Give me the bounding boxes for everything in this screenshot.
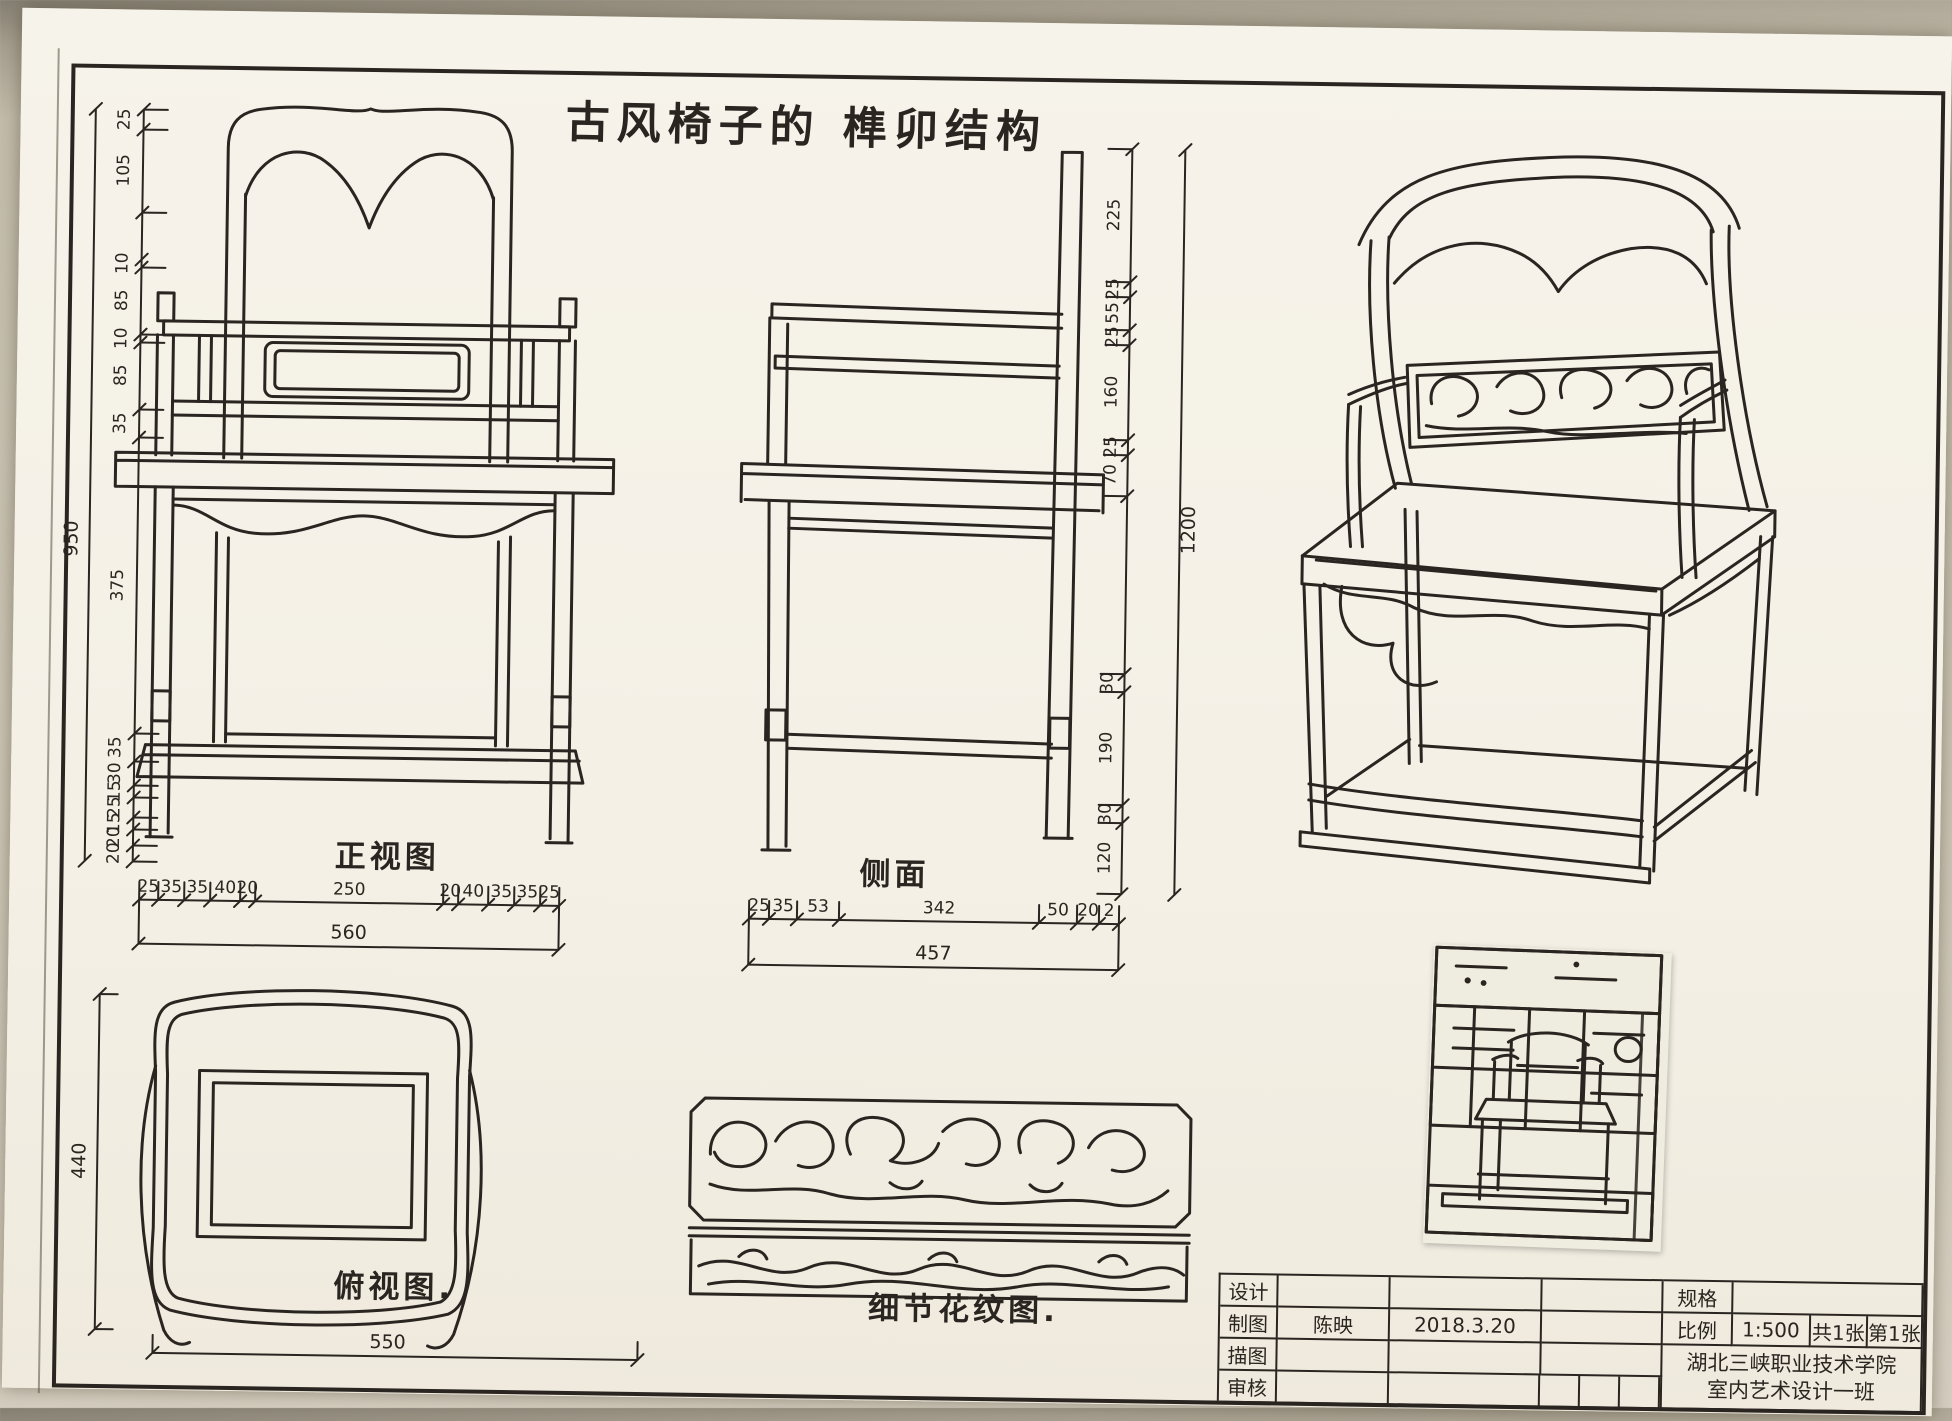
dim-value: 35 bbox=[490, 882, 512, 902]
front-bottom-dimension-chain: 25 35 35 40 20 250 20 40 35 35 25 560 bbox=[88, 869, 619, 977]
dim-value: 85 bbox=[111, 364, 131, 386]
front-view-seat bbox=[115, 452, 613, 493]
dim-value: 120 bbox=[1095, 842, 1115, 875]
perspective-arms bbox=[1345, 374, 1727, 578]
carving-scrolls bbox=[698, 1115, 1185, 1293]
tb-row0-label: 设计 bbox=[1220, 1275, 1278, 1308]
dim-value: 53 bbox=[807, 897, 829, 917]
side-view-back-post bbox=[1046, 152, 1082, 838]
tb-row3-label: 审核 bbox=[1219, 1371, 1277, 1404]
side-right-dimension-chain: 225 25 55 25 160 25 70 30 190 30 120 120… bbox=[1079, 129, 1221, 931]
top-view-inner-panel bbox=[197, 1071, 427, 1240]
tb-row3-date bbox=[1388, 1373, 1540, 1407]
detail-view-label: 细节花纹图. bbox=[868, 1282, 1059, 1330]
chair-photo bbox=[1423, 944, 1672, 1252]
tb-row1-date: 2018.3.20 bbox=[1390, 1309, 1542, 1343]
scale-value: 1:500 bbox=[1733, 1314, 1811, 1347]
front-left-dimension-chain: 25 105 10 85 10 85 35 375 35 30 15 25 15… bbox=[54, 78, 176, 880]
side-view-label: 侧面 bbox=[859, 848, 930, 894]
dim-value: 25 bbox=[137, 877, 159, 897]
front-view-back bbox=[224, 106, 513, 462]
top-bottom-dimension: 550 bbox=[137, 1325, 648, 1383]
dim-value: 225 bbox=[1104, 199, 1124, 232]
top-view-label: 俯视图. bbox=[333, 1261, 454, 1308]
perspective-carved-panel bbox=[1406, 347, 1725, 452]
title-block: 设计 制图 陈映 2018.3.20 描图 审核 bbox=[1217, 1273, 1924, 1411]
dim-total: 550 bbox=[369, 1331, 406, 1354]
top-left-dimension: 440 bbox=[62, 969, 123, 1370]
tb-row0-date bbox=[1390, 1277, 1542, 1311]
dim-value: 35 bbox=[160, 877, 182, 897]
dim-total: 950 bbox=[60, 520, 83, 557]
tb-row0-extra bbox=[1542, 1279, 1663, 1313]
tb-row3-cell5 bbox=[1580, 1376, 1620, 1409]
drawing-sheet: 古风椅子的 榫卯结构 bbox=[2, 8, 1952, 1416]
front-view-arm-rails bbox=[156, 293, 576, 461]
class-name: 室内艺术设计一班 bbox=[1707, 1377, 1875, 1407]
tb-row0-name bbox=[1278, 1276, 1390, 1310]
dim-value: 50 bbox=[1047, 900, 1069, 920]
dim-value: 105 bbox=[114, 154, 134, 187]
dim-total: 1200 bbox=[1177, 506, 1200, 555]
dim-value: 25 bbox=[1103, 278, 1123, 300]
perspective-view-drawing bbox=[1249, 131, 1831, 919]
detail-pattern-drawing bbox=[678, 1088, 1201, 1311]
dim-value: 20 bbox=[1077, 901, 1099, 921]
dim-value: 40 bbox=[214, 878, 236, 898]
sheet-index: 第1张 bbox=[1868, 1316, 1923, 1349]
tb-row2-label: 描图 bbox=[1219, 1339, 1277, 1372]
tb-row1-label: 制图 bbox=[1220, 1307, 1278, 1340]
tb-row2-date bbox=[1389, 1341, 1541, 1375]
dim-total: 560 bbox=[330, 921, 367, 944]
school-name: 湖北三峡职业技术学院 bbox=[1686, 1349, 1896, 1379]
dim-value: 25 bbox=[1102, 326, 1122, 348]
tb-row1-extra bbox=[1542, 1311, 1663, 1345]
dim-value: 35 bbox=[110, 412, 130, 434]
tick-marks bbox=[127, 103, 168, 867]
title-block-left: 设计 制图 陈映 2018.3.20 描图 审核 bbox=[1217, 1273, 1664, 1408]
spec-value bbox=[1733, 1282, 1923, 1317]
tb-row2-name bbox=[1277, 1340, 1389, 1374]
dim-value: 35 bbox=[772, 896, 794, 916]
title-block-right: 规格 比例 1:500 共1张 第1张 湖北三峡职业技术学院 室内艺术设计一班 bbox=[1662, 1279, 1924, 1411]
dim-value: 35 bbox=[105, 736, 125, 758]
side-view-arm bbox=[768, 304, 1062, 468]
tb-row1-name: 陈映 bbox=[1278, 1308, 1390, 1342]
front-view-base bbox=[136, 487, 587, 844]
dim-value: 25 bbox=[748, 896, 770, 916]
dim-value: 40 bbox=[462, 881, 484, 901]
dim-value: 20 bbox=[104, 842, 124, 864]
front-view-label: 正视图 bbox=[335, 830, 441, 877]
dim-value: 35 bbox=[516, 882, 538, 902]
dim-value: 85 bbox=[112, 289, 132, 311]
side-view-drawing bbox=[719, 133, 1120, 899]
dim-value: 20 bbox=[439, 881, 461, 901]
dim-value: 25 bbox=[1101, 436, 1121, 458]
dim-value: 25 bbox=[115, 108, 135, 130]
front-view-drawing bbox=[100, 84, 632, 872]
dim-value: 70 bbox=[1100, 464, 1120, 486]
dim-value: 10 bbox=[111, 327, 131, 349]
dim-value: 20 bbox=[236, 878, 258, 898]
tb-row3-cell6 bbox=[1620, 1377, 1660, 1410]
dim-total: 457 bbox=[915, 942, 952, 965]
dim-value: 10 bbox=[112, 252, 132, 274]
scale-label: 比例 bbox=[1663, 1313, 1733, 1346]
dim-value: 190 bbox=[1096, 732, 1116, 765]
sheet-count: 共1张 bbox=[1811, 1315, 1868, 1348]
dim-value: 35 bbox=[186, 877, 208, 897]
dim-value: 250 bbox=[333, 879, 366, 899]
side-view-seat bbox=[741, 463, 1104, 512]
side-bottom-dimension-chain: 25 35 53 342 50 20 2 457 bbox=[723, 888, 1145, 999]
dim-value: 30 bbox=[1097, 672, 1117, 694]
dim-value: 25 bbox=[538, 883, 560, 903]
tb-row2-extra bbox=[1541, 1343, 1662, 1377]
perspective-back bbox=[1355, 154, 1772, 511]
tick-marks bbox=[1097, 143, 1138, 900]
school-cell: 湖北三峡职业技术学院 室内艺术设计一班 bbox=[1662, 1345, 1923, 1413]
dim-value: 342 bbox=[923, 898, 956, 918]
side-view-base bbox=[762, 502, 1077, 855]
dim-value: 160 bbox=[1102, 376, 1122, 409]
chair-photo-image bbox=[1426, 947, 1662, 1240]
dim-total: 440 bbox=[68, 1142, 91, 1179]
tb-row3-cell4 bbox=[1540, 1375, 1580, 1408]
tb-row3-name bbox=[1277, 1372, 1389, 1406]
dim-value: 2 bbox=[1104, 901, 1115, 921]
dim-value: 30 bbox=[1095, 803, 1115, 825]
dim-value: 55 bbox=[1103, 302, 1123, 324]
spec-label: 规格 bbox=[1663, 1281, 1733, 1314]
dim-value: 375 bbox=[108, 569, 128, 602]
